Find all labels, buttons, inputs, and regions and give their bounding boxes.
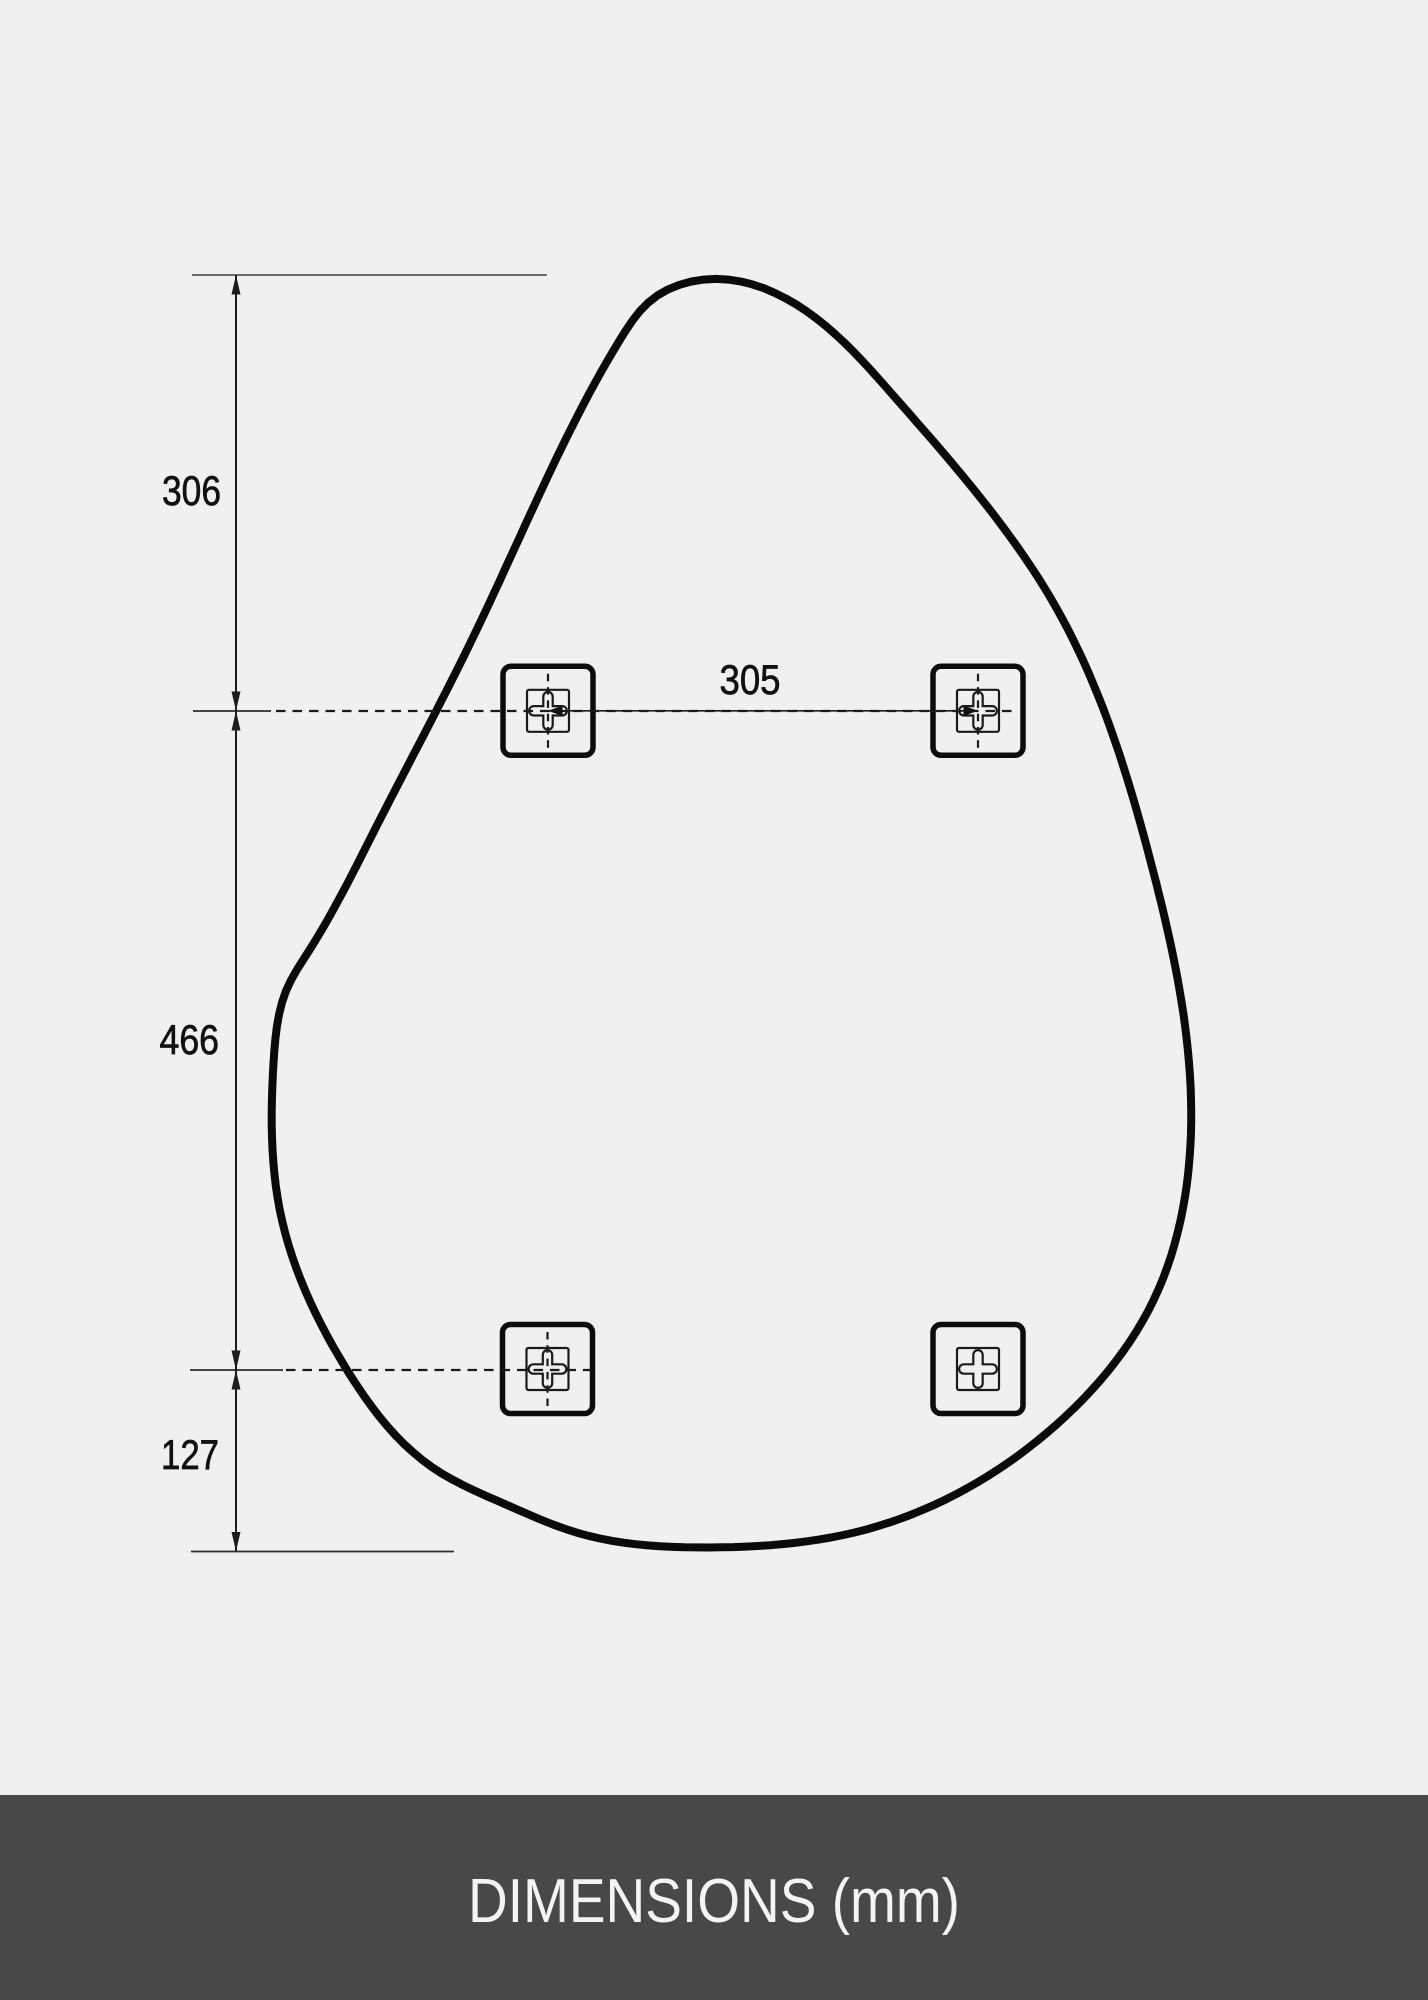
svg-text:466: 466 [160,1016,220,1063]
svg-text:305: 305 [720,656,781,703]
svg-text:127: 127 [161,1431,219,1478]
svg-text:DIMENSIONS (mm): DIMENSIONS (mm) [468,1867,960,1936]
svg-text:306: 306 [162,467,221,514]
